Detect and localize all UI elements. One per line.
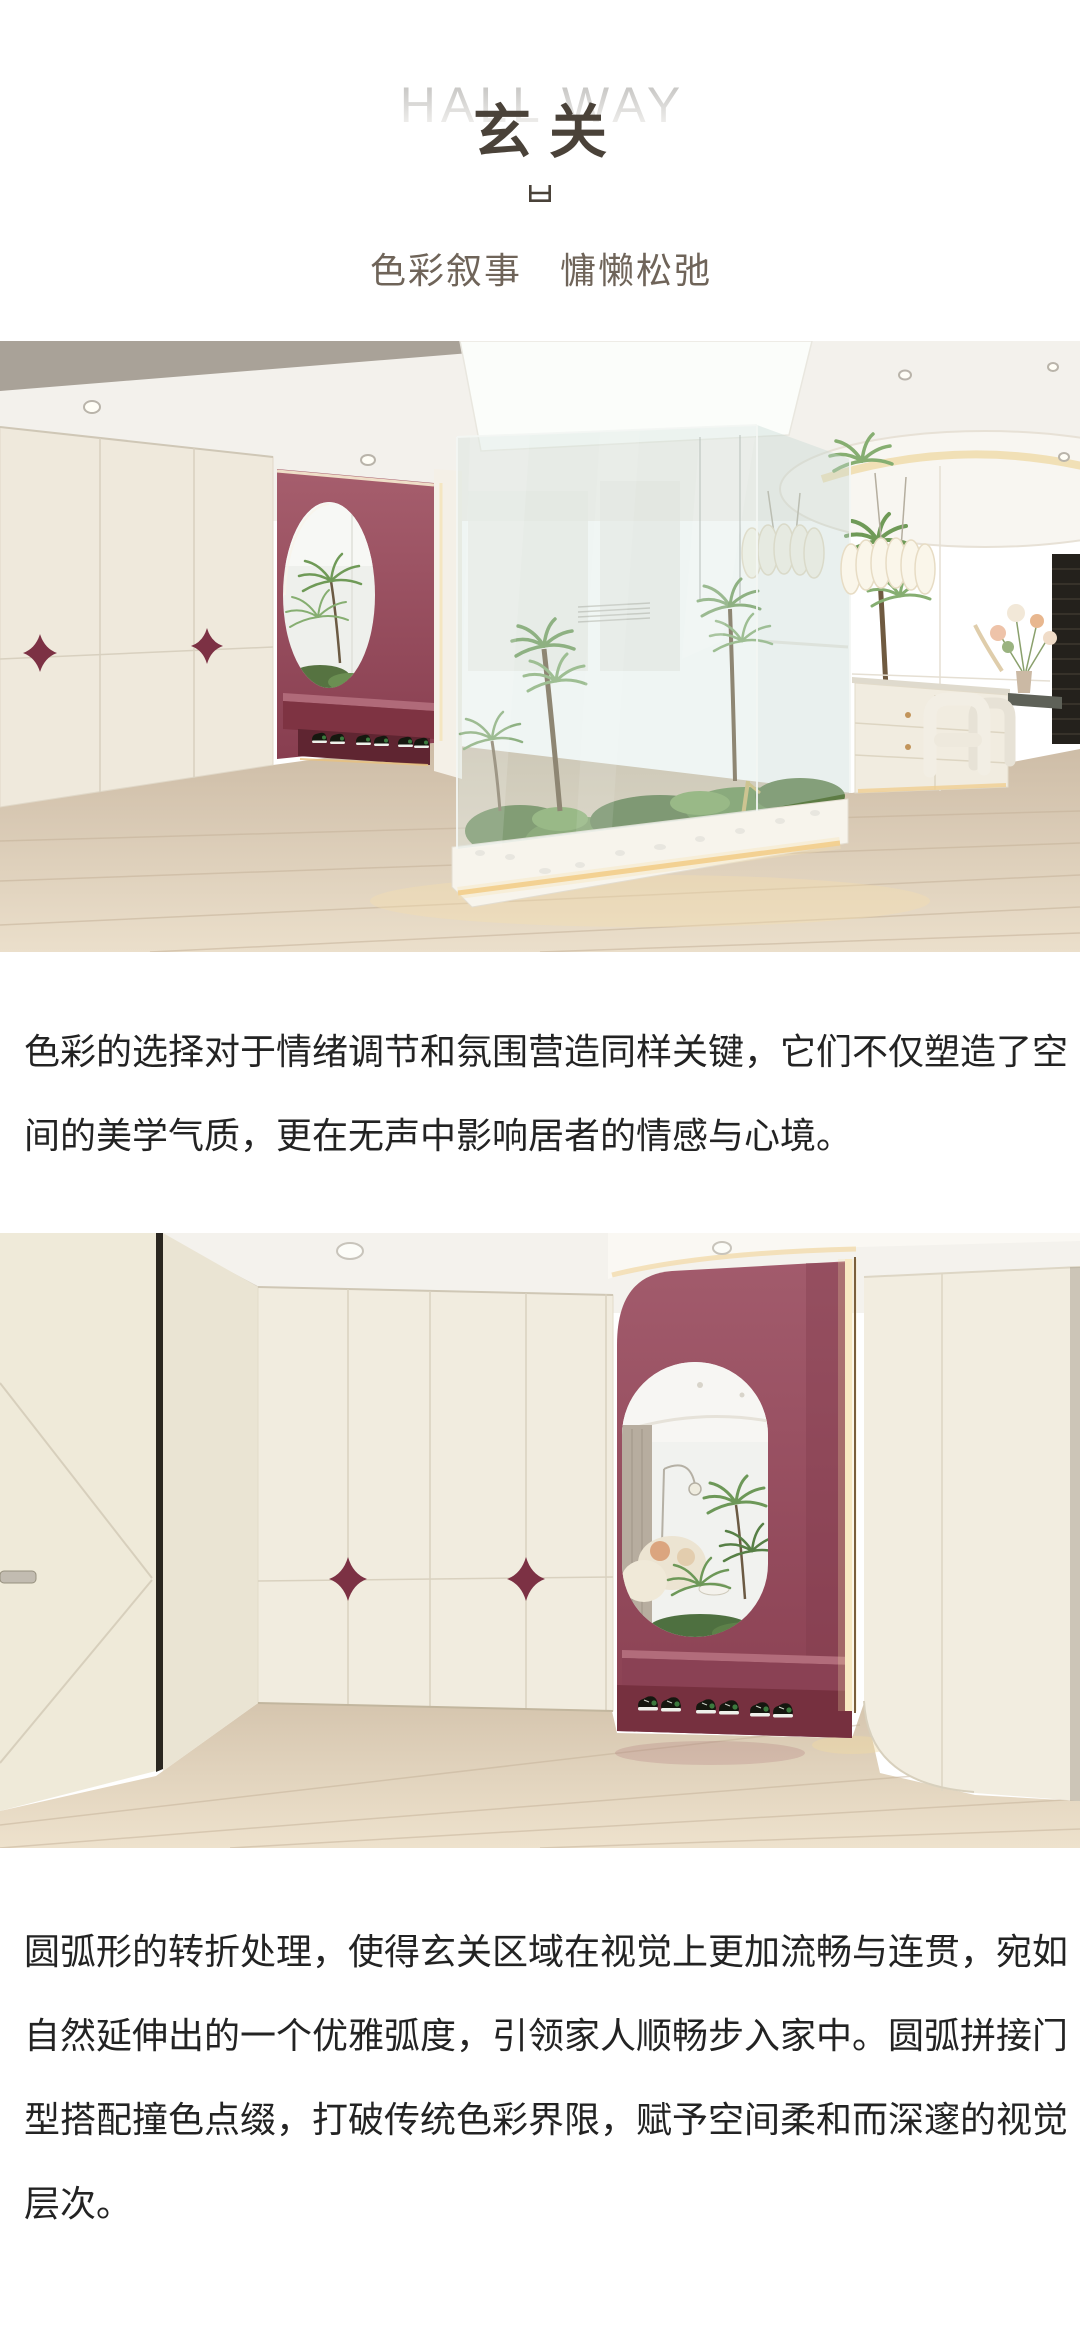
glass-enclosure xyxy=(457,425,850,849)
vase xyxy=(1016,671,1032,693)
photo-hallway-garden xyxy=(0,341,1080,952)
slatted-dark-panel xyxy=(1052,554,1080,744)
photo-entry-closeup xyxy=(0,1233,1080,1848)
vertical-led-light xyxy=(845,1259,852,1711)
entry-door xyxy=(0,1233,258,1811)
shoe-cabinet-wall xyxy=(0,427,273,807)
photo-hallway-garden-illustration xyxy=(0,341,1080,952)
door-handle xyxy=(0,1571,36,1583)
photo-entry-closeup-illustration xyxy=(0,1233,1080,1848)
red-entry-niche xyxy=(617,1257,857,1738)
shoe-cabinet-wall xyxy=(258,1287,613,1711)
red-entry-nook xyxy=(277,469,434,765)
door-gap xyxy=(156,1233,163,1772)
page-title: 玄关 xyxy=(0,104,1080,162)
section-header: HALL WAY 玄关 色彩叙事 慵懒松弛 xyxy=(0,0,1080,290)
body-paragraph: 色彩的选择对于情绪调节和氛围营造同样关键，它们不仅塑造了空间的美学气质，更在无声… xyxy=(24,1010,1068,1178)
side-wall xyxy=(163,1233,258,1771)
curved-corner-cabinet xyxy=(864,1267,1080,1801)
body-paragraph: 圆弧形的转折处理，使得玄关区域在视觉上更加流畅与连贯，宛如自然延伸出的一个优雅弧… xyxy=(24,1910,1068,2246)
divider xyxy=(0,185,1080,202)
open-box-glyph-icon xyxy=(528,185,552,202)
subtitle: 色彩叙事 慵懒松弛 xyxy=(0,252,1080,290)
article-page: HALL WAY 玄关 色彩叙事 慵懒松弛 xyxy=(0,0,1080,2328)
